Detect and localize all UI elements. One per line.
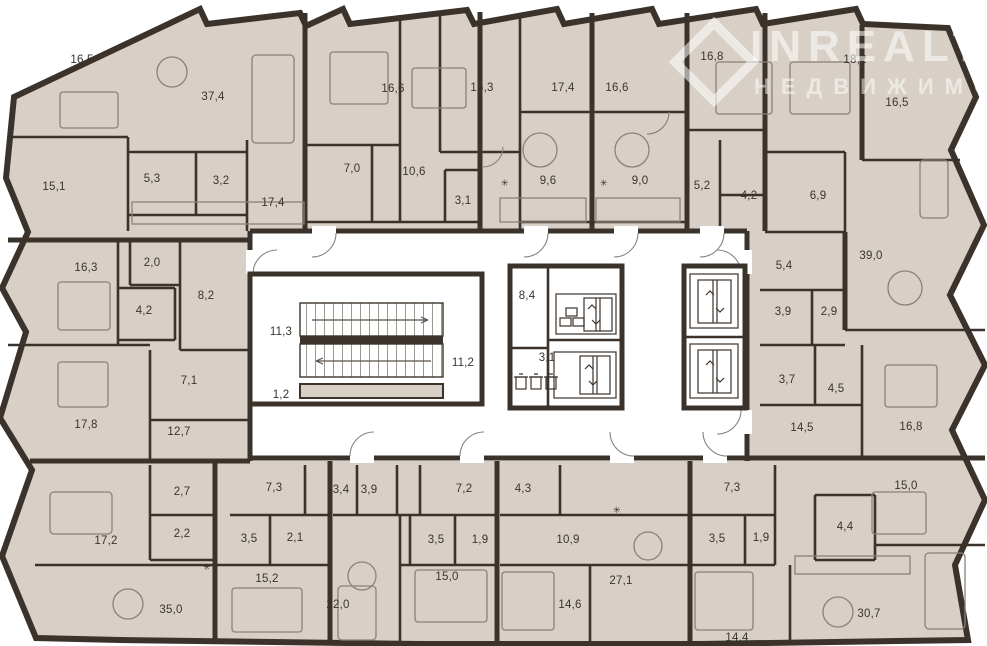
floor-plan-drawing: ✳ ✳ ✳ ✳ (0, 0, 987, 646)
elevator-core-right (684, 266, 745, 408)
svg-text:✳: ✳ (203, 563, 211, 573)
floor-plan-page: ✳ ✳ ✳ ✳ 16,537,416,615,317,416,616,818,2… (0, 0, 987, 646)
svg-text:✳: ✳ (501, 179, 509, 189)
svg-text:✳: ✳ (613, 506, 621, 516)
stair-lower-wall (300, 384, 443, 398)
svg-text:✳: ✳ (600, 179, 608, 189)
elevator-core-left (510, 266, 622, 408)
stair-rail (300, 336, 443, 344)
stair-core (250, 274, 482, 404)
